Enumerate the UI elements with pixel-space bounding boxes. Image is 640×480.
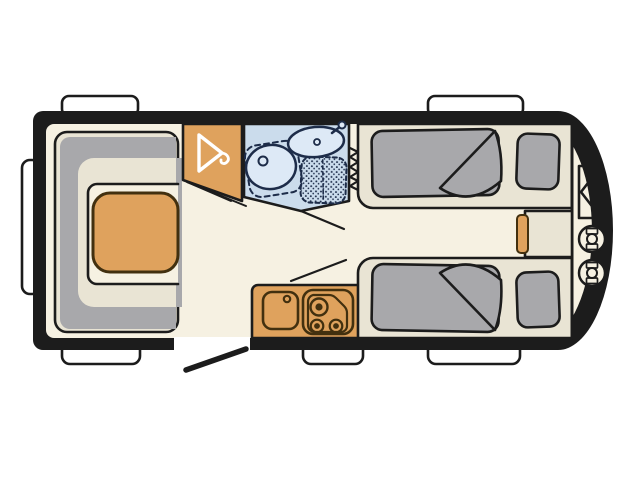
- shower-tray: [300, 156, 347, 204]
- pillow-bottom: [516, 271, 560, 327]
- dinette-table: [93, 193, 178, 272]
- bedside-cabinet: [525, 211, 572, 257]
- floorplan-drawing: [0, 0, 640, 480]
- tap-head: [339, 122, 346, 129]
- pillow-top: [516, 133, 560, 189]
- lounge-dinette: [55, 132, 182, 332]
- bedside-cabinet-front: [517, 215, 528, 253]
- caravan-floorplan: [0, 0, 640, 480]
- gas-bottle: [579, 226, 605, 252]
- entry-door: [174, 337, 250, 370]
- gas-bottle: [579, 260, 605, 286]
